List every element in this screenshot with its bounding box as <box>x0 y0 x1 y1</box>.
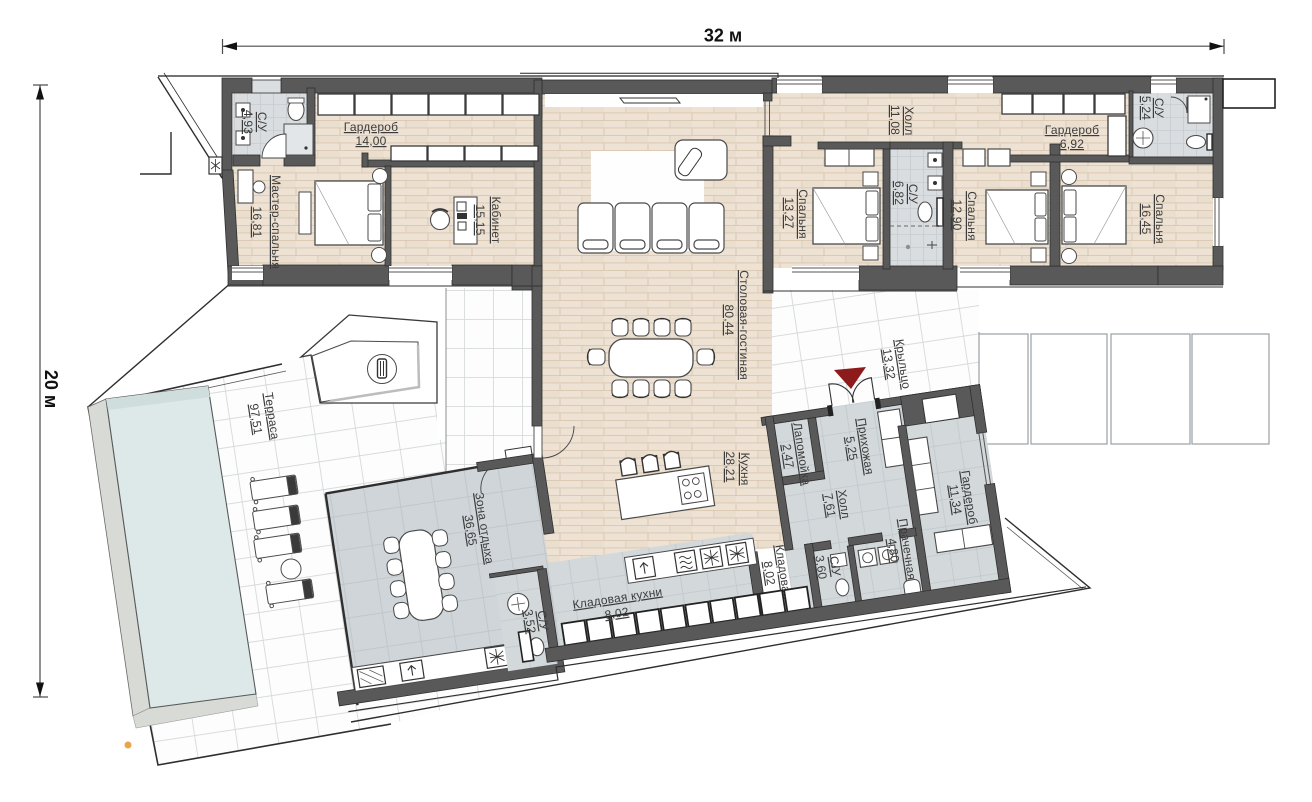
svg-text:С/У: С/У <box>906 184 920 204</box>
svg-text:Мастер-спальня: Мастер-спальня <box>269 175 283 269</box>
svg-text:Спальня: Спальня <box>965 191 979 241</box>
svg-text:Спальня: Спальня <box>796 189 810 239</box>
svg-text:С/У: С/У <box>255 112 269 132</box>
svg-text:8,02: 8,02 <box>761 560 778 586</box>
svg-text:Столовая-гостиная: Столовая-гостиная <box>737 270 751 380</box>
svg-text:16,81: 16,81 <box>250 206 264 237</box>
svg-text:5,24: 5,24 <box>1139 96 1153 120</box>
svg-text:20 м: 20 м <box>41 370 61 408</box>
svg-text:Холл: Холл <box>902 106 916 135</box>
svg-text:Кухня: Кухня <box>738 452 752 485</box>
svg-text:6,92: 6,92 <box>1060 137 1084 151</box>
svg-text:Гардероб: Гардероб <box>344 120 398 134</box>
svg-text:С/У: С/У <box>1152 98 1166 118</box>
svg-text:6,82: 6,82 <box>892 181 906 205</box>
svg-text:11,08: 11,08 <box>888 105 902 135</box>
svg-text:Гардероб: Гардероб <box>1045 123 1099 137</box>
svg-text:Спальня: Спальня <box>1153 194 1167 244</box>
svg-text:4,93: 4,93 <box>241 110 255 134</box>
svg-text:16,45: 16,45 <box>1139 203 1153 234</box>
svg-text:80,44: 80,44 <box>722 304 736 335</box>
svg-text:Кабинет: Кабинет <box>489 196 503 243</box>
svg-text:13,27: 13,27 <box>782 197 796 228</box>
svg-text:12,90: 12,90 <box>950 199 964 230</box>
svg-text:32 м: 32 м <box>704 26 742 46</box>
svg-text:14,00: 14,00 <box>355 134 386 148</box>
svg-text:28,21: 28,21 <box>723 451 737 482</box>
svg-text:15,15: 15,15 <box>473 204 487 235</box>
